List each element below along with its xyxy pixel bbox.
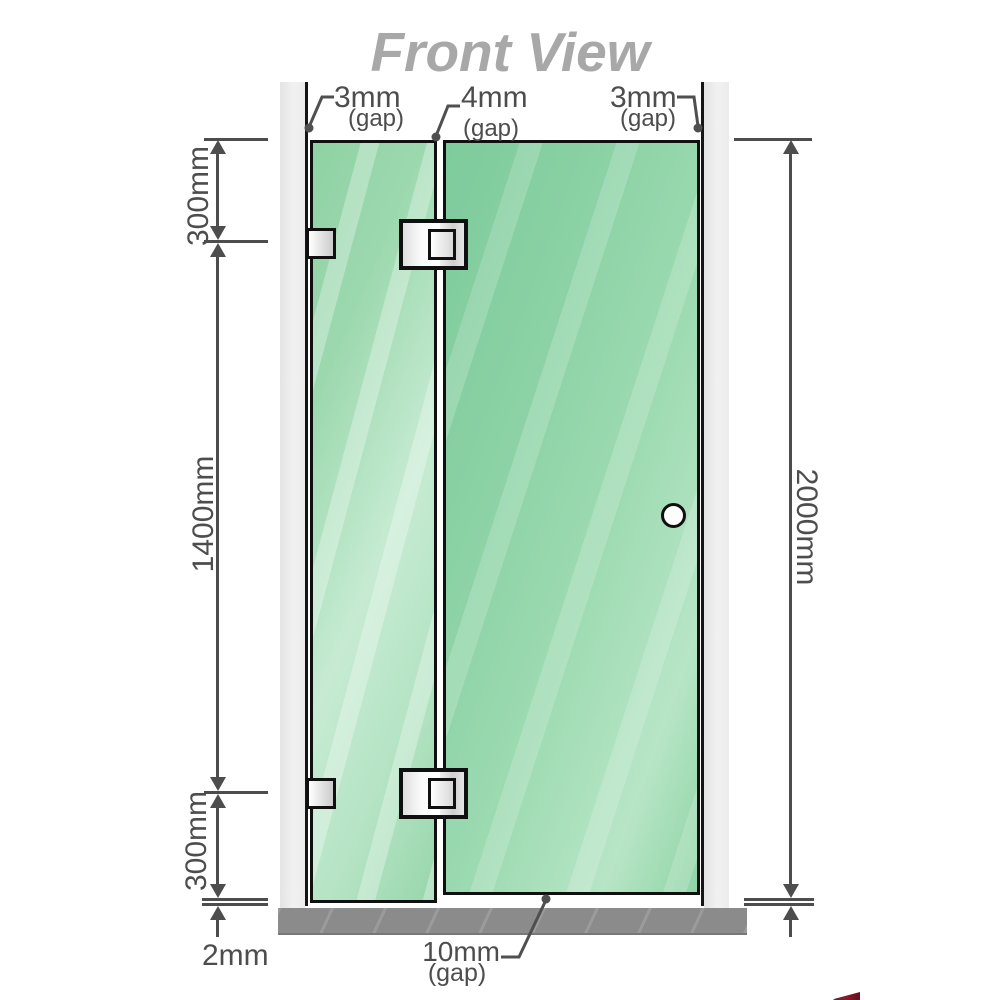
watermark-fragment [833,992,860,1000]
hinge-clamp [428,229,456,260]
dimension-arrow [783,884,799,898]
hinge-top [399,219,468,270]
dimension-label-1400mm: 1400mm [189,434,219,594]
hinge-bottom [399,768,468,819]
dimension-line [216,146,219,236]
wall-bracket-bottom [306,778,336,809]
wall-channel-left [280,82,305,908]
gap-qualifier-right: (gap) [598,107,698,131]
page-title: Front View [345,20,675,84]
dimension-label-2mm: 2mm [202,941,269,971]
hinge-clamp [428,778,456,809]
dimension-line [216,914,219,937]
wall-channel-right [704,82,729,908]
floor [278,908,747,935]
gap-qualifier-left: (gap) [326,107,426,131]
door-handle [661,503,686,528]
dimension-tick [744,903,814,906]
dimension-label-300mm-top: 300mm [184,126,214,266]
gap-label-4mm-middle: 4mm [461,83,528,113]
dimension-line [789,914,792,937]
dimension-tick [734,138,812,141]
wall-channel-right-edge-line [701,82,704,906]
wall-bracket-top [306,228,336,259]
dimension-label-2000mm: 2000mm [791,442,821,612]
dimension-label-300mm-bottom: 300mm [182,771,212,911]
diagram-canvas: Front View 300mm 140 [0,0,1000,1000]
dimension-arrow [210,777,226,791]
dimension-tick [744,898,814,901]
gap-qualifier-middle: (gap) [441,117,541,141]
dimension-line [216,801,219,893]
gap-qualifier-bottom: (gap) [407,961,507,985]
